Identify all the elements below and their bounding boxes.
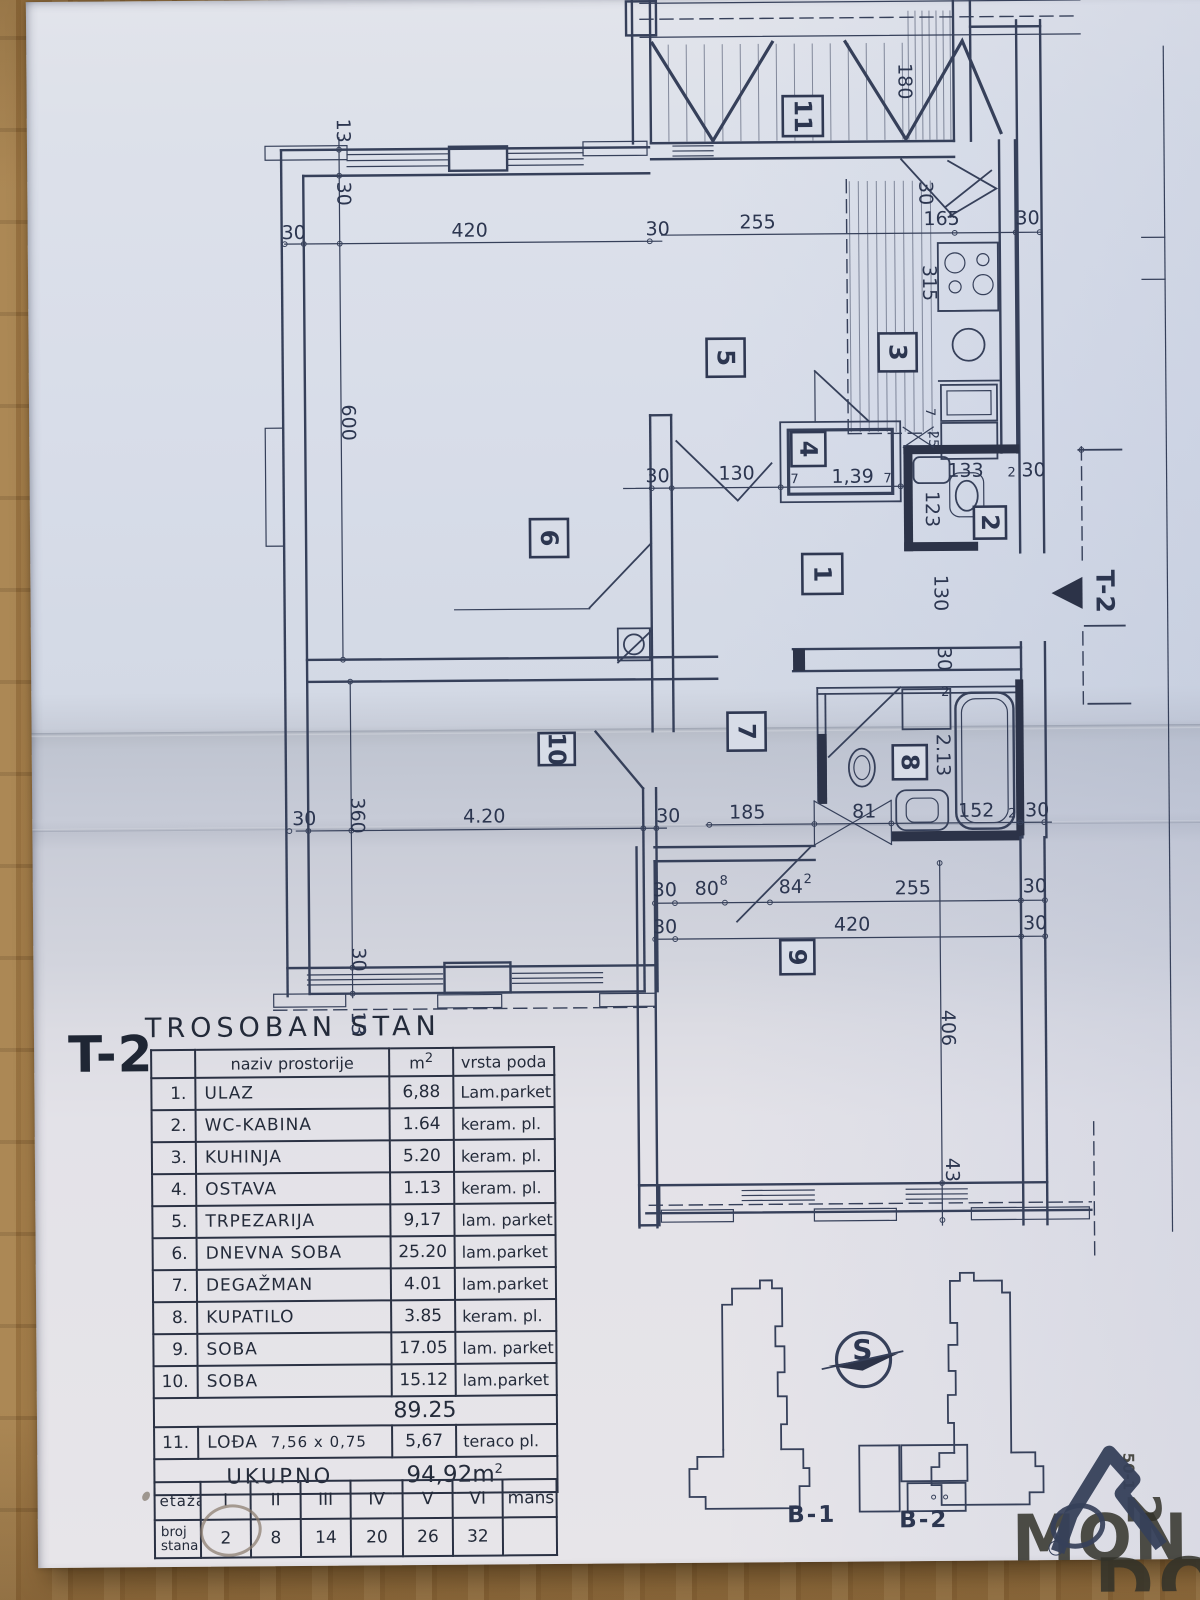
dim: 30 [281,222,305,244]
room-number-3: 3 [884,344,912,361]
dim: 130 [718,462,754,484]
dim: 255 [895,877,931,899]
table-row: 8.KUPATILO3.85keram. pl. [153,1299,556,1334]
dim: 2.13 [932,734,954,776]
window-sill [814,1208,896,1221]
watermark-mon: MON [1012,1501,1190,1576]
header-floor: vrsta poda [453,1047,554,1076]
door-swing [736,846,812,922]
angled-wall [596,731,643,788]
dim: 420 [451,220,487,242]
building-b1-base [689,1449,809,1509]
window-sill [600,993,656,1006]
dim: 133 [947,460,983,482]
toilet [956,481,978,511]
dim: 43 [941,1158,963,1182]
dim-180: 180 [893,63,915,99]
dim: 30 [1023,875,1047,897]
table-row: 7.DEGAŽMAN4.01lam.parket [153,1267,556,1302]
watermark-red-roof [1059,1452,1157,1545]
dim: 360 [346,797,368,833]
building-b1-label: B-1 [787,1502,836,1528]
subtotal-value: 89.25 [393,1398,456,1423]
window-sill [583,141,647,156]
kitchen-room-3: 3 [846,161,999,460]
room-number-9: 9 [783,949,811,966]
door-swing [589,543,652,607]
wc-room-2: 2 [903,426,1020,551]
header-name: naziv prostorije [195,1048,389,1078]
dim: 30 [914,181,936,205]
table-row: 9.SOBA17.05lam. parket [153,1331,556,1366]
window-sill [661,1210,733,1223]
dim: 255 [739,211,775,233]
room-number-2: 2 [976,514,1004,531]
dim: 4.20 [463,805,505,827]
room-number-11: 11 [789,99,817,133]
dim: 600 [337,404,359,440]
floor-drain-symbol [618,628,650,660]
dim: 2 [1008,806,1016,821]
toilet [849,749,875,787]
dim: 25 [925,431,940,448]
dim: 30 [653,916,677,938]
loggia-room-11: 11 180 [626,0,1082,219]
dim: 7 [883,471,891,486]
room-number-box-2 [974,506,1006,538]
window-sill [265,146,347,161]
dim-sup: 8 [720,874,728,889]
room-number-box-6 [530,519,568,557]
door-swing [901,159,953,217]
building-b1-outline [722,1280,787,1449]
watermark: 50-1 2 MON DOM [1011,1451,1200,1600]
room-9: 9 [636,837,1091,1228]
subject-unit-hatched [859,1445,900,1511]
dim: 165 [923,208,959,230]
room-number-box-8 [893,745,927,779]
room-number-5: 5 [712,349,740,366]
room-number-box-3 [878,333,916,371]
dim: 152 [958,800,994,822]
compass-circle [836,1332,890,1386]
sheet-margin-lines [1085,46,1173,1257]
section-label: T-2 [1090,570,1119,614]
kitchen-sink [952,329,984,361]
dim: 13 [332,118,354,142]
window-sill [274,994,346,1008]
stove-burner [977,254,989,266]
dim: 30 [645,465,669,487]
room-number-box-5 [707,339,745,377]
table-row: 4.OSTAVA1.13keram. pl. [152,1171,555,1206]
dim: 30 [1021,459,1045,481]
exterior-walls [262,20,1048,996]
room-number-box-10 [539,733,575,765]
pantry-room-4: 4 [780,370,901,502]
stove-burner [949,281,961,293]
kitchen-counter [941,423,997,459]
dim: 30 [1015,207,1039,229]
double-door-swing [676,440,771,501]
dim: 2 [941,685,949,700]
dim: 81 [852,801,876,823]
toilet-outline [950,473,984,517]
loggia-row: 11. LOĐA 7,56 x 0,75 5,67 teraco pl. [154,1424,557,1459]
dim: 7 [922,408,937,416]
dim: 7 [790,472,798,487]
shower-unit [902,689,950,729]
plan-title: TROSOBAN STAN [145,1011,441,1044]
door-swing [815,371,869,422]
table-row: 3.KUHINJA5.20keram. pl. [152,1139,555,1174]
window-sill [971,1207,1089,1220]
dim: 30 [292,808,316,830]
bathroom-room-8: 8 [813,679,1024,845]
room-number-box-11 [783,96,823,136]
header-area: m2 [389,1048,453,1077]
room-number-1: 1 [808,565,836,582]
dim: 123 [921,491,943,527]
room-number-box-1 [802,554,842,594]
table-row: 1.ULAZ6,88Lam.parket [151,1075,554,1110]
table-header-row: naziv prostorije m2 vrsta poda [151,1047,554,1078]
section-marker-t2: T-2 [1050,447,1130,705]
dim: 185 [729,801,765,823]
dim: 30 [656,805,680,827]
room-list-table: naziv prostorije m2 vrsta poda 1.ULAZ6,8… [150,1046,558,1496]
room-number-box-7 [727,712,765,750]
dim: 30 [653,879,677,901]
room-number-10: 10 [543,732,571,766]
stairs-arrow [948,161,996,217]
room-number-8: 8 [896,754,924,771]
table-row: 6.DNEVNA SOBA25.20lam.parket [153,1235,556,1270]
interior-walls [305,412,1021,734]
pencil-mark [141,1490,152,1502]
watermark-yellow-ring [1049,1501,1106,1551]
sheet-unit-label: T-2 [68,1025,154,1084]
table-row: 5.TRPEZARIJA9,17lam. parket [152,1203,555,1238]
building-b2-label: B-2 [899,1507,948,1533]
sheet-code: 50-1 [1119,1453,1137,1491]
dim: 315 [918,265,940,301]
stove-burner [945,253,965,273]
room-number-6: 6 [535,530,563,547]
blueprint-paper-sheet: TROSOBAN STAN T-2 naziv prostorije m2 vr… [26,0,1200,1568]
dim: 130 [929,575,951,611]
stove-burner [973,275,993,295]
window-sill [438,994,502,1008]
room-number-box-9 [780,940,814,974]
loggia-hatch [668,11,951,141]
dim-sup: 2 [804,872,812,887]
table-row: 2.WC-KABINA1.64keram. pl. [152,1107,555,1142]
bathtub [955,692,1014,828]
table-row: 10.SOBA15.12lam.parket [154,1363,557,1398]
sheet-number: 2 [1117,1493,1171,1525]
compass-needle [828,1353,898,1371]
room-number-box-4 [791,432,825,466]
dim: 30 [332,181,354,205]
room-number-7: 7 [733,723,761,740]
dim: 30 [1023,912,1047,934]
dim: 2 [1007,465,1015,480]
door-swing [828,687,901,757]
subtotal-row: 89.25 [154,1395,557,1427]
balcony-brace [652,42,773,141]
balcony-brace [845,41,1001,140]
section-arrow [1051,577,1082,609]
dim: 84 [779,876,803,898]
window-sill [265,428,284,546]
watermark-red-dot [1049,1541,1063,1555]
dim: 1,39 [831,466,873,488]
room-number-4: 4 [794,441,822,458]
wall-pillar [444,962,510,993]
kitchen-counter [941,385,997,421]
dim: 30 [1025,799,1049,821]
dim: 30 [933,647,955,671]
dim: 406 [937,1010,959,1046]
stove [938,243,999,311]
kitchen-floor-hatch [849,181,932,432]
site-key-plan: S B-1 B-2 [688,1272,1044,1535]
compass-south: S [852,1334,874,1367]
washbasin [896,790,948,830]
dim: 30 [645,218,669,240]
building-b2-base [931,1452,1043,1505]
room-10: 10 [272,731,658,1010]
wc-washbasin [913,457,949,483]
dim: 420 [834,914,870,936]
dim: 80 [695,878,719,900]
building-b2-outline [947,1272,1011,1452]
dim: 30 [347,947,369,971]
wall-pillar [449,146,507,170]
